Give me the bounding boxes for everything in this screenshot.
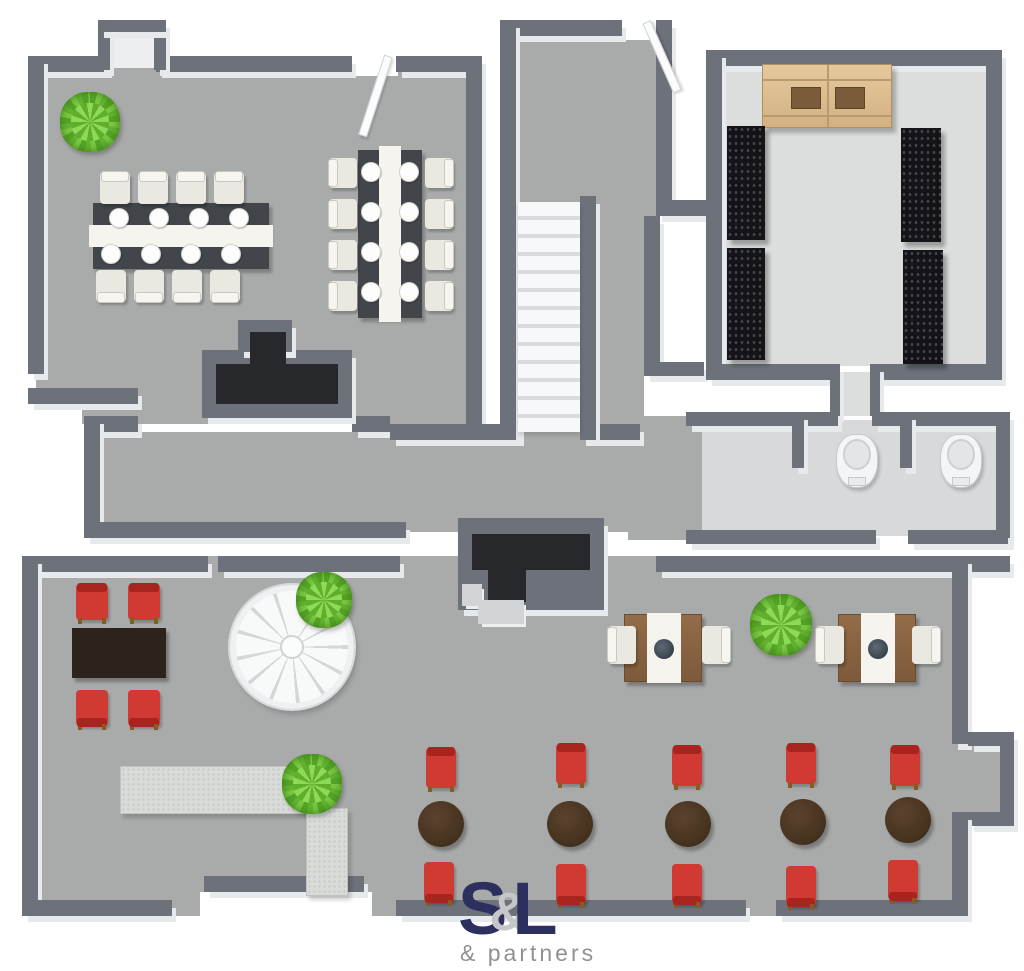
- plant: [282, 754, 342, 814]
- round-table: [665, 801, 711, 847]
- wall-segment: [22, 556, 208, 572]
- plant: [750, 594, 812, 656]
- table-runner: [379, 146, 401, 322]
- red-chair: [128, 690, 160, 726]
- wall-segment: [996, 412, 1010, 544]
- place-setting-plate: [101, 244, 121, 264]
- white-chair: [100, 172, 130, 204]
- wall-segment: [870, 364, 1002, 380]
- red-chair: [556, 744, 586, 784]
- white-chair: [210, 270, 240, 302]
- wall-segment: [98, 20, 166, 32]
- place-setting-plate: [399, 282, 419, 302]
- wall-segment: [644, 362, 704, 376]
- place-setting-plate: [189, 208, 209, 228]
- wall-segment: [792, 412, 804, 468]
- white-chair: [912, 626, 940, 664]
- toilet: [836, 434, 878, 488]
- place-setting-plate: [109, 208, 129, 228]
- wall-segment: [908, 530, 1008, 544]
- white-chair: [172, 270, 202, 302]
- round-table: [885, 797, 931, 843]
- red-chair: [76, 584, 108, 620]
- white-chair: [176, 172, 206, 204]
- white-chair: [425, 240, 453, 270]
- wall-segment: [952, 556, 968, 744]
- wall-segment: [500, 20, 622, 36]
- wall-segment: [706, 364, 836, 380]
- cabinet-divider-line: [827, 65, 829, 127]
- wall-segment: [686, 530, 876, 544]
- banquet-table: [93, 203, 269, 269]
- white-chair: [329, 158, 357, 188]
- wall-segment: [968, 812, 1014, 826]
- storage-rack: [903, 250, 943, 364]
- toilet-lid: [843, 439, 872, 470]
- wall-segment: [580, 196, 596, 440]
- plant: [296, 572, 352, 628]
- lower-shaft-void: [472, 534, 590, 570]
- staircase: [518, 202, 580, 432]
- wall-segment: [644, 216, 660, 362]
- storage-passage-floor: [838, 372, 872, 416]
- reception-counter: [306, 808, 348, 896]
- toilet-tank: [952, 477, 970, 486]
- white-chair: [425, 199, 453, 229]
- red-chair: [424, 862, 454, 902]
- white-chair: [702, 626, 730, 664]
- white-chair: [608, 626, 636, 664]
- table-runner: [89, 225, 273, 247]
- entry-hall-floor: [516, 28, 656, 218]
- red-chair: [786, 866, 816, 906]
- red-chair: [888, 860, 918, 900]
- spiral-staircase-hub: [280, 635, 304, 659]
- wall-segment: [22, 556, 38, 916]
- toilet-lid: [947, 439, 976, 470]
- upper-shaft-void: [216, 364, 338, 404]
- white-chair: [134, 270, 164, 302]
- wall-segment: [28, 56, 44, 374]
- place-setting-plate: [399, 242, 419, 262]
- wall-segment: [466, 56, 482, 424]
- storage-rack: [727, 126, 765, 240]
- red-chair: [426, 748, 456, 788]
- white-chair: [138, 172, 168, 204]
- place-setting-plate: [361, 242, 381, 262]
- place-setting-plate: [399, 202, 419, 222]
- lower-shaft-void: [488, 570, 526, 602]
- place-setting-plate: [181, 244, 201, 264]
- stair-corridor-floor: [596, 196, 644, 428]
- place-setting-plate: [399, 162, 419, 182]
- place-setting-plate: [149, 208, 169, 228]
- wall-segment: [84, 416, 100, 538]
- wall-segment: [686, 412, 838, 426]
- white-chair: [329, 240, 357, 270]
- toilet-tank: [848, 477, 866, 486]
- red-chair: [76, 690, 108, 726]
- round-table: [547, 801, 593, 847]
- wood-dining-table: [838, 614, 916, 682]
- white-chair: [214, 172, 244, 204]
- red-chair: [786, 744, 816, 784]
- white-chair: [425, 158, 453, 188]
- round-table: [418, 801, 464, 847]
- white-chair: [96, 270, 126, 302]
- wall-segment: [656, 200, 712, 216]
- wall-segment: [872, 412, 1010, 426]
- wall-segment: [84, 522, 406, 538]
- wall-segment: [22, 900, 172, 916]
- white-chair: [329, 199, 357, 229]
- plant: [60, 92, 120, 152]
- white-chair: [329, 281, 357, 311]
- cabinet-opening: [791, 87, 821, 109]
- table-bowl: [868, 639, 888, 659]
- place-setting-plate: [141, 244, 161, 264]
- round-table: [780, 799, 826, 845]
- red-chair: [556, 864, 586, 904]
- toilet: [940, 434, 982, 488]
- cabinet-opening: [835, 87, 865, 109]
- storage-rack: [727, 248, 765, 360]
- wall-segment: [28, 388, 138, 404]
- place-setting-plate: [229, 208, 249, 228]
- place-setting-plate: [361, 282, 381, 302]
- wall-segment: [156, 56, 352, 72]
- place-setting-plate: [221, 244, 241, 264]
- red-chair: [890, 746, 920, 786]
- wall-segment: [830, 364, 840, 416]
- rectangular-table: [72, 628, 166, 678]
- bay-floor: [952, 746, 1000, 812]
- place-setting-plate: [361, 202, 381, 222]
- lower-shaft-stub: [478, 600, 524, 624]
- red-chair: [128, 584, 160, 620]
- storage-rack: [901, 128, 941, 242]
- wall-segment: [870, 364, 880, 416]
- white-chair: [816, 626, 844, 664]
- red-chair: [672, 746, 702, 786]
- table-bowl: [654, 639, 674, 659]
- alcove-floor: [110, 32, 154, 68]
- wall-segment: [706, 50, 722, 364]
- floor-plan-layers: [0, 0, 1024, 971]
- wall-segment: [352, 416, 390, 432]
- banquet-table: [358, 150, 422, 318]
- wall-segment: [986, 50, 1002, 380]
- place-setting-plate: [361, 162, 381, 182]
- red-chair: [672, 864, 702, 904]
- wall-segment: [500, 20, 516, 440]
- corridor-floor: [92, 432, 640, 532]
- floor-plan-canvas: S&L & partners: [0, 0, 1024, 971]
- wall-segment: [952, 812, 968, 916]
- wood-cabinet: [762, 64, 892, 128]
- wall-segment: [218, 556, 400, 572]
- white-chair: [425, 281, 453, 311]
- wall-segment: [900, 412, 912, 468]
